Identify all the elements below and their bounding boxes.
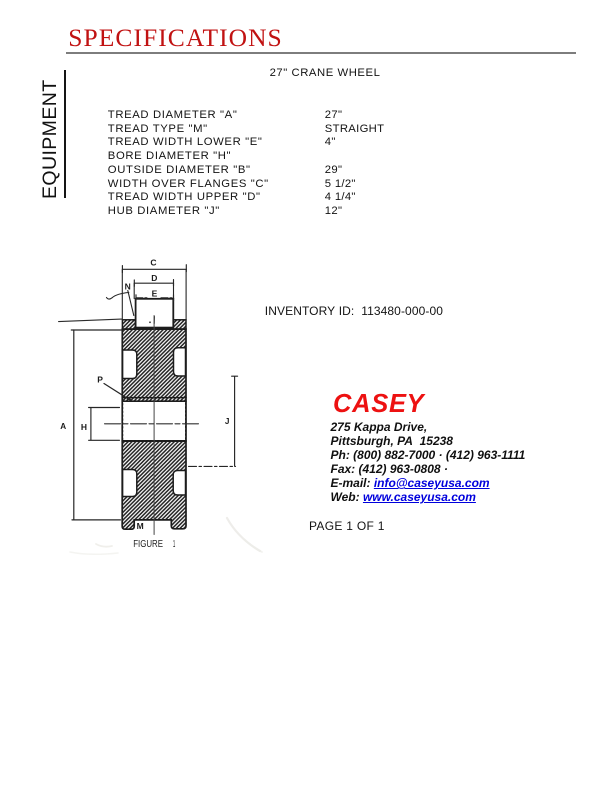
svg-text:D: D [151,273,157,283]
svg-text:P: P [97,374,103,384]
svg-text:E: E [152,288,158,298]
svg-text:M: M [137,521,144,531]
svg-text:C: C [150,257,156,267]
svg-text:A: A [60,422,66,431]
svg-text:FIGURE: FIGURE [133,539,163,550]
svg-text:N: N [125,281,131,291]
svg-text:H: H [81,422,87,432]
svg-text:J: J [225,417,230,426]
svg-text:1: 1 [173,539,175,550]
